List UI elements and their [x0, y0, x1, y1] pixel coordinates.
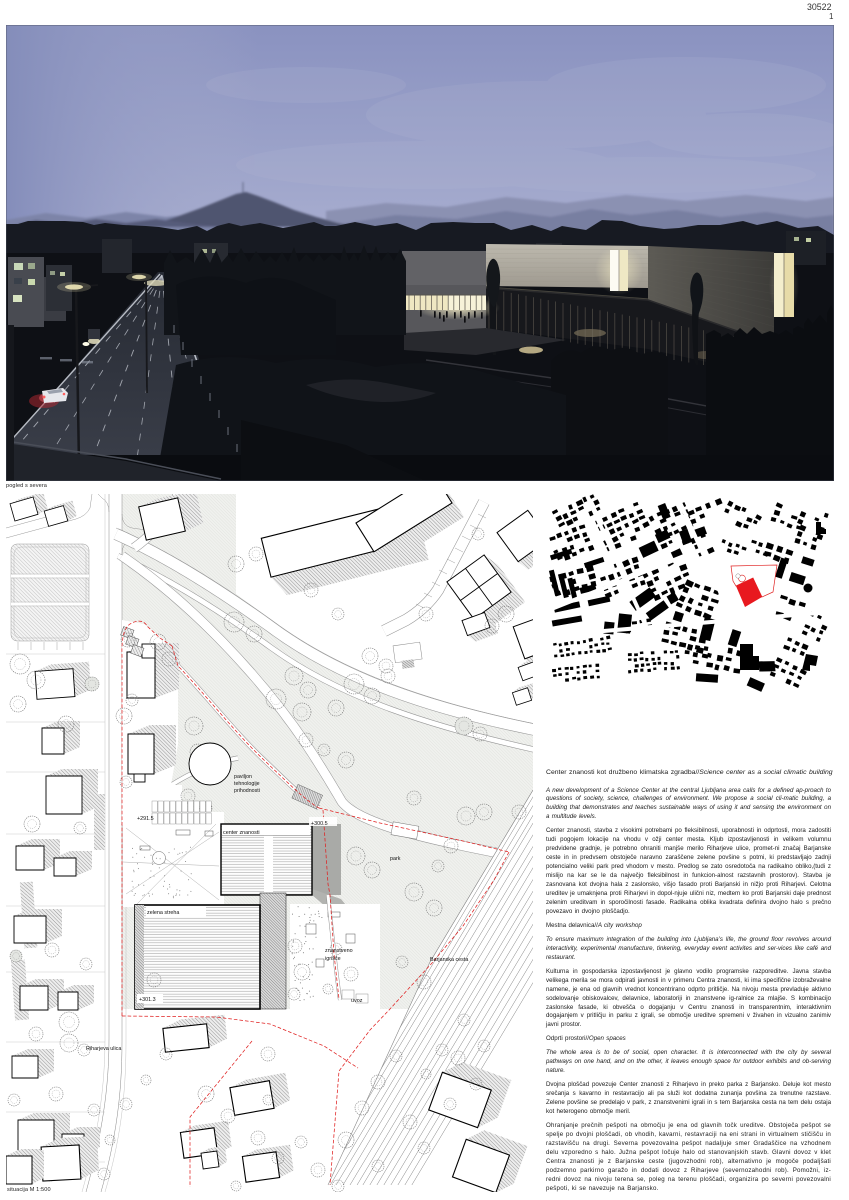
- svg-text:Riharjeva ulica: Riharjeva ulica: [86, 1046, 121, 1052]
- svg-text:uvoz: uvoz: [351, 998, 363, 1004]
- svg-text:+291.5: +291.5: [137, 816, 154, 822]
- svg-text:paviljon: paviljon: [234, 774, 252, 780]
- svg-text:znanstveno: znanstveno: [325, 948, 353, 954]
- svg-text:zelena streha: zelena streha: [147, 910, 179, 916]
- svg-text:+301.3: +301.3: [139, 997, 156, 1003]
- svg-text:+300.5: +300.5: [311, 821, 328, 827]
- svg-text:tehnologije: tehnologije: [234, 781, 260, 787]
- svg-text:Barjanska cesta: Barjanska cesta: [430, 957, 468, 963]
- svg-text:prihodnosti: prihodnosti: [234, 788, 260, 794]
- svg-text:park: park: [390, 856, 401, 862]
- svg-text:center znanosti: center znanosti: [223, 830, 260, 836]
- svg-text:igrišče: igrišče: [325, 956, 341, 962]
